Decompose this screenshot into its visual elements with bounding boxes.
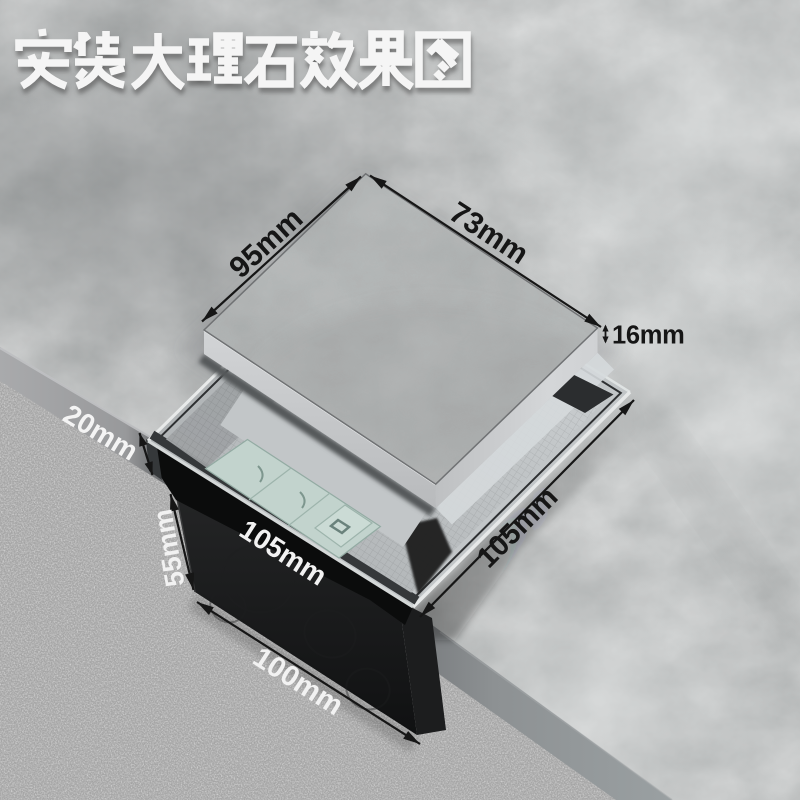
svg-text:16mm: 16mm bbox=[612, 322, 685, 350]
